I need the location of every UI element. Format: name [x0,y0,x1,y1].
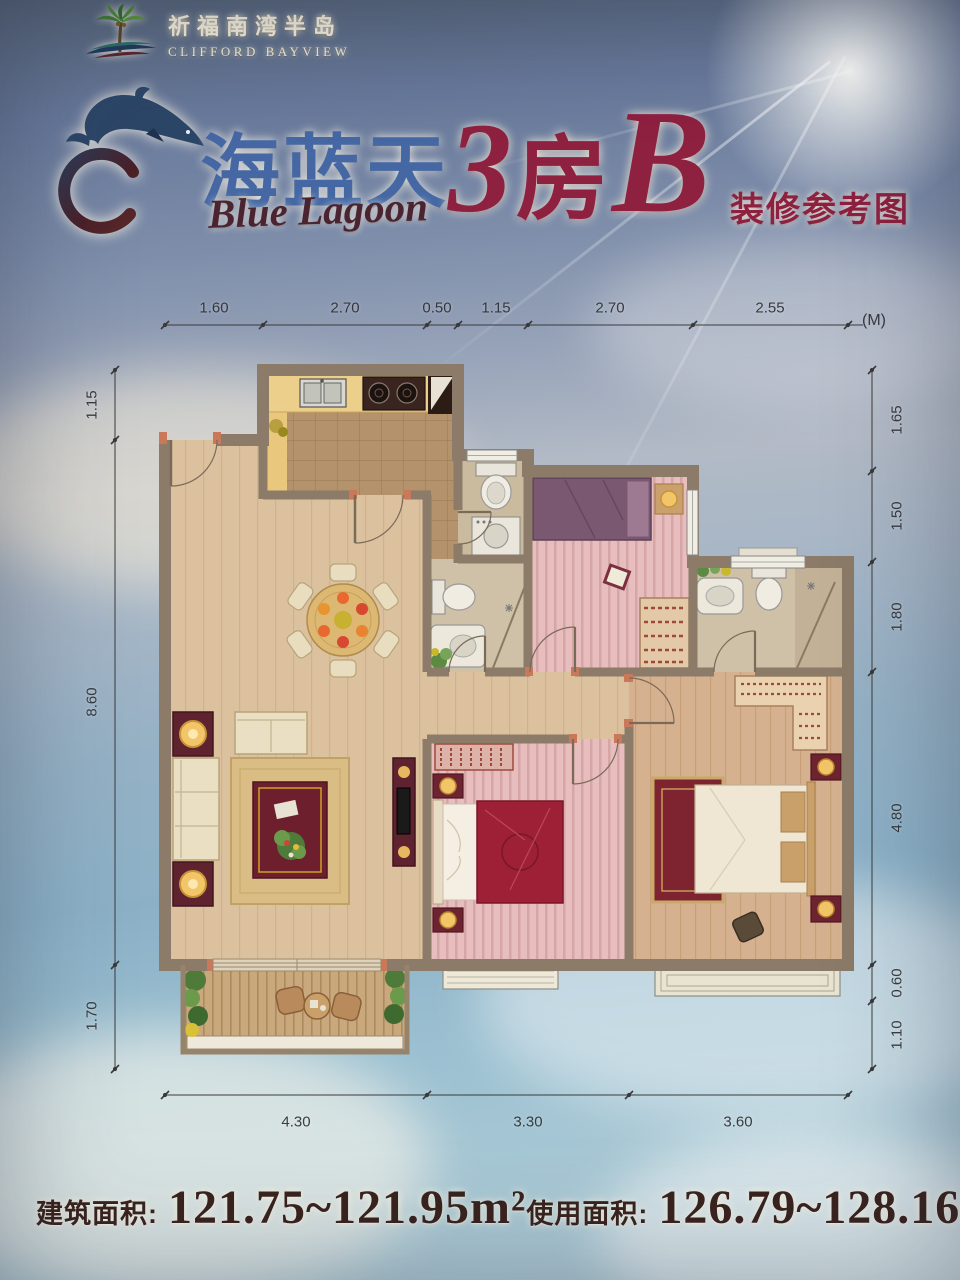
unit-type-number: 3 [448,104,512,232]
estate-logo: 祈福南湾半岛 CLIFFORD BAYVIEW [84,4,350,64]
bed [433,800,563,904]
gross-area-value: 121.75~121.95m² [168,1180,526,1235]
dim-right-6: 1.10 [889,1020,906,1049]
bathroom2-window [731,548,805,568]
nightstand [433,908,463,932]
lamp-table [173,862,213,906]
brand-name-en: Blue Lagoon [207,182,428,238]
dim-bottom-2: 3.30 [513,1114,542,1131]
dolphin-logo [58,80,218,255]
shower-head [807,582,815,590]
usable-area-value: 126.79~128.16m² [658,1180,960,1235]
tv-cabinet [393,758,415,866]
vanity-sink [431,625,485,669]
dim-top-1: 1.60 [199,300,228,317]
dim-top-5: 2.70 [595,300,624,317]
loveseat [235,712,307,754]
nightstand [811,754,841,780]
dresser [435,744,513,770]
laundry-window [467,450,517,461]
dim-top-2: 2.70 [330,300,359,317]
unit-subtitle: 装修参考图 [730,182,910,231]
nightstand [811,896,841,922]
bedroom2-window [687,490,698,555]
nightstand [433,774,463,798]
dim-left-3: 1.70 [84,1001,101,1030]
bed [695,782,815,896]
balcony-sliding-door [213,959,381,971]
unit-title: 3 房 B [448,88,711,236]
palm-tree-icon [84,4,158,64]
dim-top-6: 2.55 [755,300,784,317]
floor-plan [95,280,895,1130]
coffee-table [253,782,327,878]
vanity-sink [697,578,743,614]
dim-right-1: 1.65 [889,405,906,434]
dim-left-1: 1.15 [84,390,101,419]
kitchen-plant [278,427,288,437]
wardrobe [640,598,689,668]
dim-top-4: 1.15 [481,300,510,317]
usable-area-label: 使用面积: [526,1192,648,1231]
floor-plan-poster: 祈福南湾半岛 CLIFFORD BAYVIEW 海蓝天 Blue Lagoon … [0,0,960,1280]
dim-top-3: 0.50 [422,300,451,317]
unit-type-letter: B [612,88,711,236]
plant [431,648,439,656]
kitchen-sink [300,379,346,407]
dim-right-5: 0.60 [889,968,906,997]
estate-name-en: CLIFFORD BAYVIEW [168,44,350,60]
bed [533,478,651,540]
dim-right-2: 1.50 [889,501,906,530]
washing-machine [472,517,520,555]
dim-right-4: 4.80 [889,803,906,832]
shower-head [505,604,513,612]
sofa [173,758,219,860]
plant [440,648,452,660]
dim-right-3: 1.80 [889,602,906,631]
dim-bottom-1: 4.30 [281,1114,310,1131]
gross-area-label: 建筑面积: [36,1192,158,1231]
unit-type-cjk: 房 [516,134,608,226]
dim-bottom-3: 3.60 [723,1114,752,1131]
dim-left-2: 8.60 [84,687,101,716]
fridge [428,374,456,414]
estate-name-cn: 祈福南湾半岛 [168,9,350,41]
lamp-table [173,712,213,756]
nightstand [655,484,683,514]
stove [363,377,425,410]
dim-unit-label: (M) [862,312,886,330]
area-summary: 建筑面积: 121.75~121.95m² 使用面积: 126.79~128.1… [36,1180,956,1235]
balcony-rail-window [187,1036,403,1049]
